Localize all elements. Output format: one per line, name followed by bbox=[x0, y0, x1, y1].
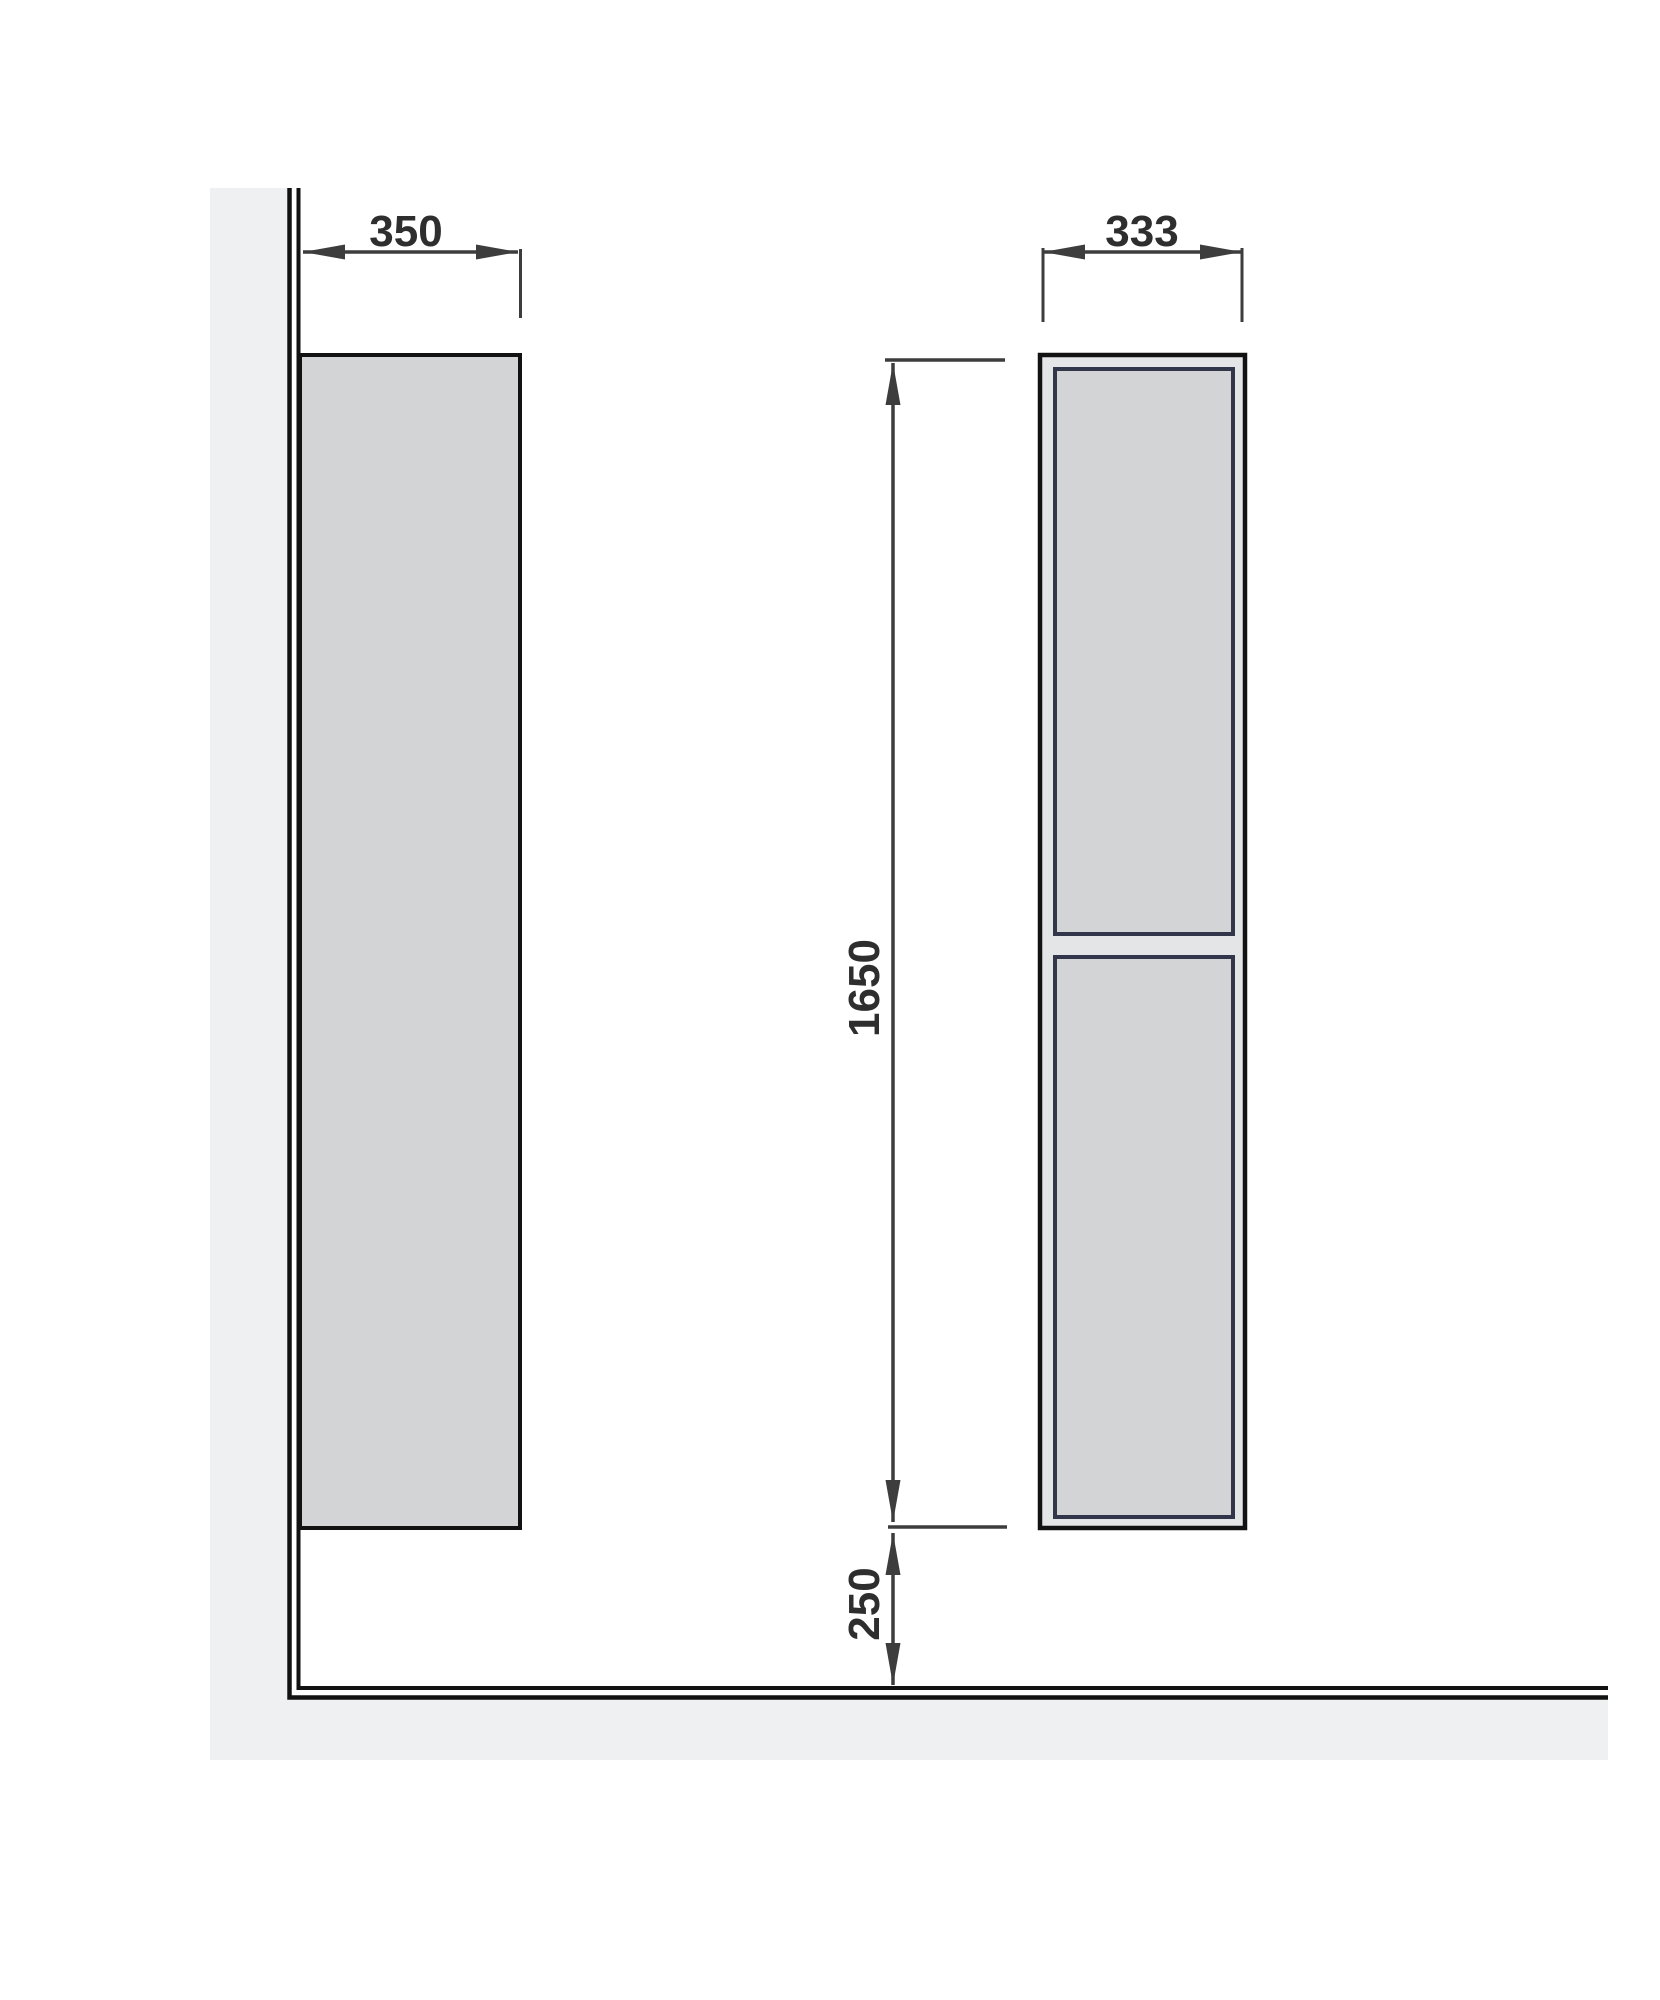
dim-depth-label: 350 bbox=[369, 207, 442, 256]
cabinet-door-upper bbox=[1055, 369, 1233, 934]
dim-height-arrow-up bbox=[886, 363, 901, 405]
cabinet-side-body bbox=[300, 355, 520, 1528]
dimension-clearance: 250 bbox=[840, 1533, 901, 1685]
wall-surface bbox=[210, 188, 287, 1760]
dim-width-arrow-right bbox=[1200, 245, 1242, 260]
dim-height-label: 1650 bbox=[840, 939, 889, 1037]
floor-surface bbox=[210, 1697, 1608, 1760]
cabinet-door-lower bbox=[1055, 957, 1233, 1517]
cabinet-side-view bbox=[300, 355, 520, 1528]
dim-clearance-arrow-down bbox=[886, 1643, 901, 1685]
dim-height-arrow-down bbox=[886, 1480, 901, 1522]
dimension-height: 1650 bbox=[840, 360, 1007, 1527]
dimension-depth: 350 bbox=[303, 207, 521, 318]
dim-depth-arrow-right bbox=[476, 245, 518, 260]
dim-depth-arrow-left bbox=[303, 245, 345, 260]
dim-width-label: 333 bbox=[1105, 207, 1178, 256]
technical-drawing: 350 333 1650 250 bbox=[0, 0, 1660, 2000]
dimension-width: 333 bbox=[1043, 207, 1242, 322]
drawing-svg: 350 333 1650 250 bbox=[0, 0, 1660, 2000]
dim-clearance-label: 250 bbox=[840, 1567, 889, 1640]
cabinet-front-view bbox=[1040, 355, 1245, 1528]
dim-width-arrow-left bbox=[1043, 245, 1085, 260]
